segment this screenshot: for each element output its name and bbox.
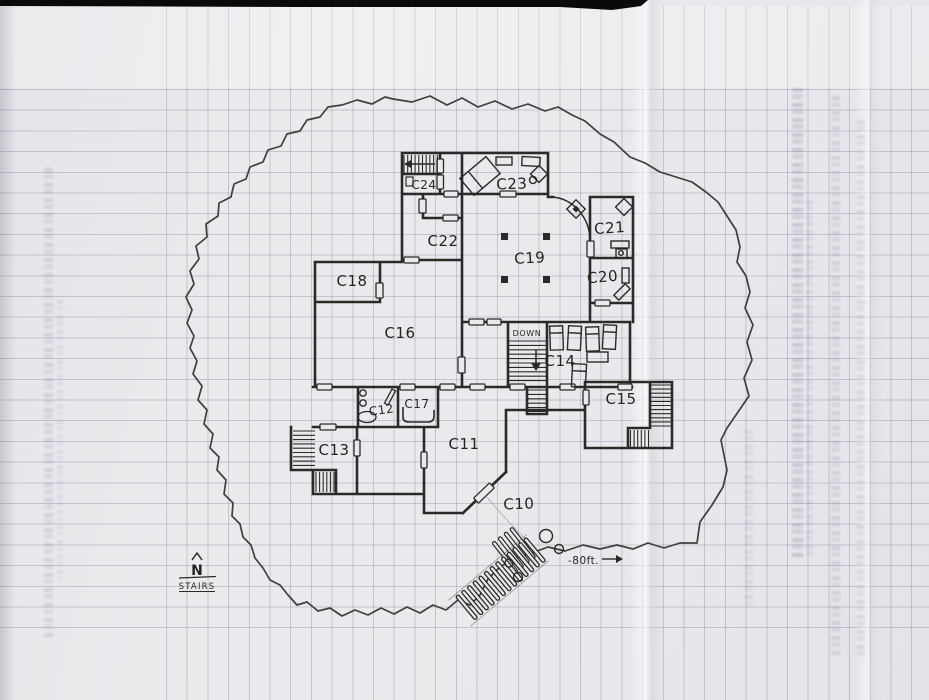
door — [440, 384, 455, 390]
door-diagonal-entrance — [474, 483, 495, 503]
bed — [567, 326, 581, 351]
scale-marker: -80ft. — [568, 555, 623, 567]
table — [522, 157, 540, 167]
door — [437, 175, 444, 189]
scanned-graph-paper-map: DOWN — [0, 0, 929, 700]
table — [587, 352, 608, 362]
room-label-c15: C15 — [605, 390, 636, 408]
door — [587, 241, 594, 257]
room-label-c12: C12 — [368, 401, 395, 418]
room-label-c14: C14 — [544, 352, 575, 370]
room-label-c19: C19 — [514, 248, 546, 268]
door — [320, 424, 336, 430]
bed — [602, 325, 616, 350]
door — [404, 257, 419, 263]
north-caret-icon — [192, 553, 202, 560]
basin — [360, 400, 366, 406]
scale-label: -80ft. — [568, 555, 599, 567]
room-label-c23: C23 — [496, 174, 528, 193]
bed — [550, 326, 564, 350]
room-label-c17: C17 — [404, 397, 429, 411]
room-label-c10: C10 — [503, 494, 535, 513]
door — [487, 319, 501, 325]
basin — [360, 390, 366, 396]
shelf — [611, 241, 629, 248]
door — [419, 199, 426, 213]
bed — [460, 157, 500, 196]
pillar — [501, 233, 508, 240]
door — [510, 384, 525, 390]
boulder — [540, 530, 553, 543]
table — [496, 157, 512, 165]
room-label-c18: C18 — [336, 272, 367, 290]
stool — [619, 251, 624, 256]
outdoor-staircase — [448, 527, 563, 626]
table — [616, 199, 633, 216]
chair — [531, 166, 548, 183]
room-label-c16: C16 — [384, 324, 415, 342]
room-label-c20: C20 — [586, 267, 619, 288]
room-label-c11: C11 — [448, 435, 479, 453]
pillar — [543, 276, 550, 283]
pillar — [501, 276, 508, 283]
room-label-c22: C22 — [427, 232, 458, 250]
cavern-outline — [186, 96, 753, 616]
door — [595, 300, 610, 306]
door — [444, 191, 458, 197]
pillar — [543, 233, 550, 240]
door — [469, 319, 484, 325]
door — [421, 452, 427, 468]
room-label-c13: C13 — [318, 441, 349, 459]
bench — [614, 284, 630, 300]
room-label-c24: C24 — [411, 178, 436, 192]
stool — [530, 177, 537, 184]
door — [470, 384, 485, 390]
scan-edge-bar — [0, 0, 648, 10]
down-stairs-label: DOWN — [513, 329, 542, 338]
door — [443, 215, 458, 221]
door — [458, 357, 465, 373]
cabinet — [622, 268, 629, 283]
stairs-note-label: STAIRS — [179, 582, 216, 592]
door — [400, 384, 415, 390]
door — [354, 440, 360, 456]
bed — [586, 327, 600, 351]
north-marker: N STAIRS — [179, 553, 216, 592]
room-label-c21: C21 — [594, 218, 626, 238]
door — [583, 390, 589, 405]
door — [317, 384, 332, 390]
door — [376, 283, 383, 298]
door — [437, 159, 444, 173]
